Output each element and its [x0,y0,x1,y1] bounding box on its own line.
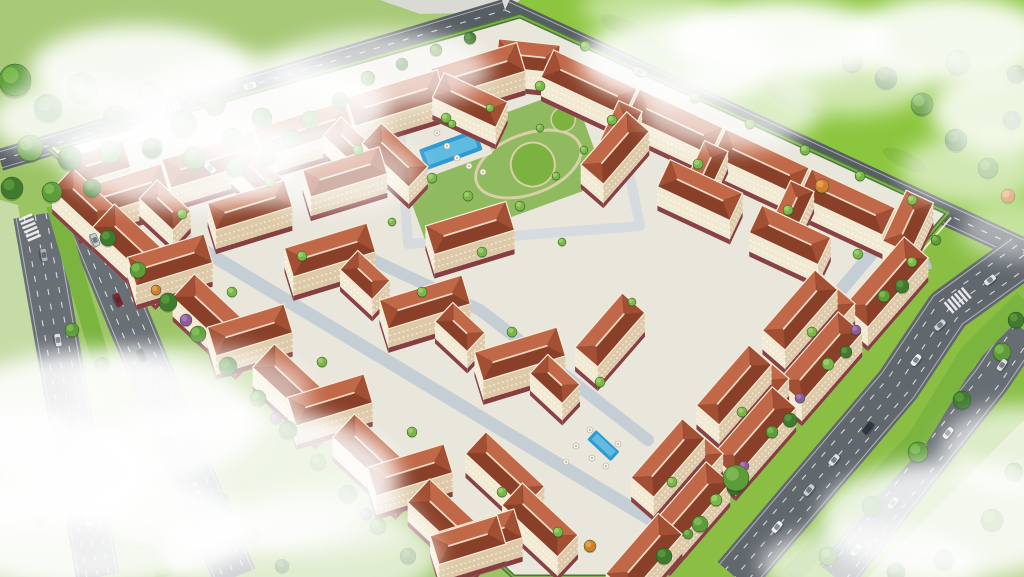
tree [297,251,307,262]
tree [693,159,703,170]
tree [766,426,778,439]
tree [584,540,596,553]
tree [477,247,487,258]
tree [908,442,928,464]
tree [515,201,525,212]
tree [180,314,192,327]
tree [595,377,605,388]
tree [931,235,941,246]
umbrella [480,169,486,175]
tree [855,171,865,182]
tree [552,172,560,181]
cloud [240,485,420,555]
tree [151,285,161,296]
tree [628,298,636,307]
tree [907,195,917,206]
tree [737,407,747,418]
tree [100,230,116,247]
tree [800,145,810,156]
umbrella [454,155,460,161]
tree [417,287,427,298]
tree [65,323,79,338]
tree [783,413,797,428]
umbrella [434,130,440,136]
tree [507,327,517,338]
tree [448,120,456,129]
tree [486,104,494,113]
tree [683,529,693,540]
tree [177,209,187,220]
cloud [220,130,420,210]
cloud [70,345,310,435]
tree [895,279,909,294]
tree [388,218,396,227]
tree [878,290,890,303]
tree [723,465,749,493]
tree [907,257,917,268]
tree [710,494,722,507]
aerial-render [0,0,1024,577]
tree [463,191,473,202]
umbrella [603,463,609,469]
tree [795,393,805,404]
tree [853,249,863,260]
tree [783,205,793,216]
tree [953,391,971,411]
tree [656,548,672,565]
tree [1008,312,1024,329]
tree [822,358,834,371]
cloud [270,30,490,110]
tree [536,124,544,133]
tree [535,81,545,92]
umbrella [573,443,579,449]
umbrella [563,459,569,465]
tree [580,146,588,155]
tree [553,527,563,538]
tree [130,262,146,279]
tree [607,115,617,126]
tree [692,516,708,533]
tree [159,293,177,313]
umbrella [589,455,595,461]
tree [851,325,861,336]
tree [227,287,237,298]
tree [42,182,62,204]
render-viewport: Aerial 3D architectural rendering of a w… [0,0,1024,577]
tree [558,238,566,247]
tree [667,477,677,488]
tree [815,179,829,194]
umbrella [466,163,472,169]
tree [1,177,23,201]
tree [317,357,327,368]
tree [807,327,817,338]
tree [190,326,206,343]
umbrella [615,441,621,447]
tree [497,487,507,498]
tree [464,32,476,45]
umbrella [444,143,450,149]
tree [840,346,852,359]
umbrella [587,427,593,433]
tree [407,427,417,438]
tree [427,173,437,184]
